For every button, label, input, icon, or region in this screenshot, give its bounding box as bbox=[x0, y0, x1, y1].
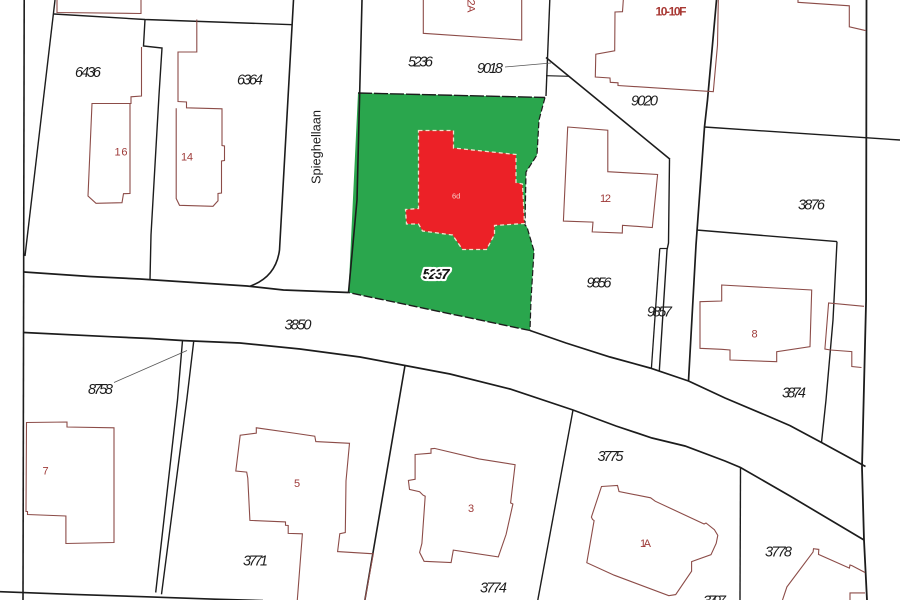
svg-text:8758: 8758 bbox=[88, 382, 113, 398]
svg-text:14: 14 bbox=[181, 152, 193, 164]
svg-text:6364: 6364 bbox=[237, 73, 263, 89]
svg-text:2A: 2A bbox=[465, 0, 477, 13]
svg-text:10-10F: 10-10F bbox=[656, 5, 687, 19]
svg-text:6436: 6436 bbox=[75, 65, 102, 81]
svg-text:16: 16 bbox=[115, 147, 128, 159]
svg-text:7: 7 bbox=[43, 466, 49, 478]
svg-text:12: 12 bbox=[600, 193, 611, 205]
svg-text:9856: 9856 bbox=[587, 276, 613, 292]
svg-text:5: 5 bbox=[294, 478, 300, 490]
svg-text:6d: 6d bbox=[452, 192, 460, 201]
svg-text:1A: 1A bbox=[640, 538, 652, 550]
svg-text:3774: 3774 bbox=[480, 581, 507, 597]
svg-text:9018: 9018 bbox=[477, 61, 503, 77]
svg-text:3778: 3778 bbox=[765, 545, 792, 561]
svg-text:9020: 9020 bbox=[631, 94, 658, 110]
svg-text:3775: 3775 bbox=[598, 449, 625, 465]
svg-text:3: 3 bbox=[468, 503, 474, 515]
svg-text:Spieghellaan: Spieghellaan bbox=[309, 110, 324, 184]
svg-text:3874: 3874 bbox=[782, 386, 806, 402]
svg-text:5236: 5236 bbox=[408, 55, 434, 71]
svg-text:5237: 5237 bbox=[423, 266, 451, 283]
svg-text:3771: 3771 bbox=[243, 554, 268, 570]
svg-text:3797: 3797 bbox=[703, 594, 727, 600]
svg-text:3850: 3850 bbox=[285, 318, 312, 334]
svg-text:8: 8 bbox=[752, 329, 758, 341]
svg-text:3876: 3876 bbox=[798, 198, 826, 214]
svg-text:9857: 9857 bbox=[647, 305, 673, 321]
